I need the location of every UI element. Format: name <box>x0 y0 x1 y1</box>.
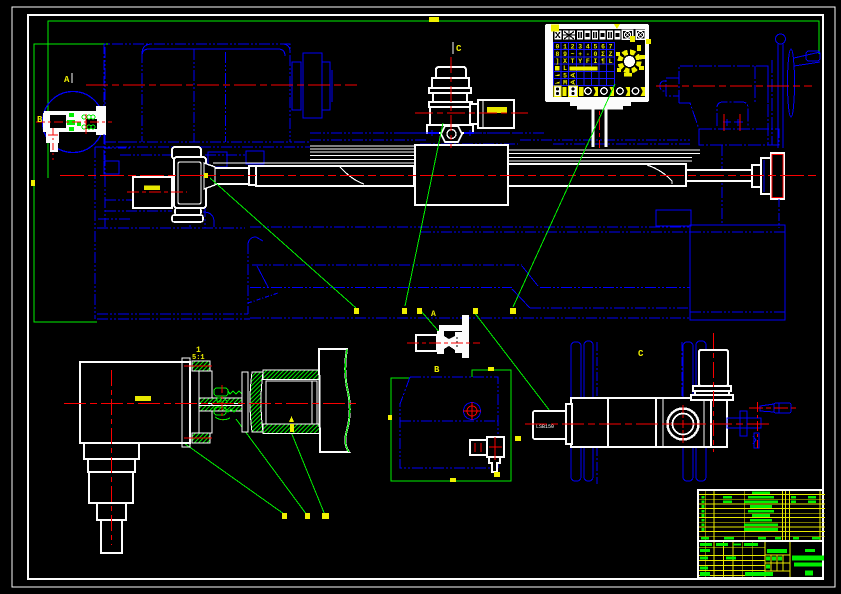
svg-text:L: L <box>563 65 567 72</box>
svg-text:5: 5 <box>563 72 567 79</box>
svg-text:M: M <box>563 80 567 87</box>
svg-text:]: ] <box>555 58 559 65</box>
svg-text:Y: Y <box>578 58 582 65</box>
svg-text:2: 2 <box>571 44 575 51</box>
svg-text:4: 4 <box>586 44 590 51</box>
svg-text:-: - <box>586 51 590 58</box>
svg-text:∢: ∢ <box>570 72 575 79</box>
svg-text:A: A <box>431 310 436 319</box>
svg-text:B: B <box>37 115 43 125</box>
svg-text:+: + <box>578 51 582 58</box>
svg-text:C: C <box>456 44 462 54</box>
svg-text:5:1: 5:1 <box>192 354 205 362</box>
svg-text:C: C <box>638 349 644 359</box>
svg-text:0: 0 <box>555 44 559 51</box>
svg-text:T: T <box>571 58 575 65</box>
svg-text:3: 3 <box>578 44 582 51</box>
svg-text:F: F <box>586 58 590 65</box>
svg-text:8: 8 <box>555 51 559 58</box>
svg-text:9: 9 <box>563 51 567 58</box>
svg-text:Z: Z <box>609 51 613 58</box>
svg-text:L: L <box>609 58 613 65</box>
svg-text:B: B <box>434 365 440 375</box>
svg-text:~: ~ <box>571 51 575 58</box>
svg-text:LSB150: LSB150 <box>536 424 554 430</box>
svg-text:0: 0 <box>593 51 597 58</box>
svg-text:1: 1 <box>563 44 567 51</box>
svg-text:7: 7 <box>609 44 613 51</box>
svg-text:Σ: Σ <box>601 51 605 58</box>
svg-text:A: A <box>64 75 70 85</box>
svg-text:X: X <box>563 58 567 65</box>
svg-text:5: 5 <box>593 44 597 51</box>
svg-text:I: I <box>593 58 597 65</box>
svg-text:¶: ¶ <box>601 58 605 65</box>
svg-text:6: 6 <box>601 44 605 51</box>
